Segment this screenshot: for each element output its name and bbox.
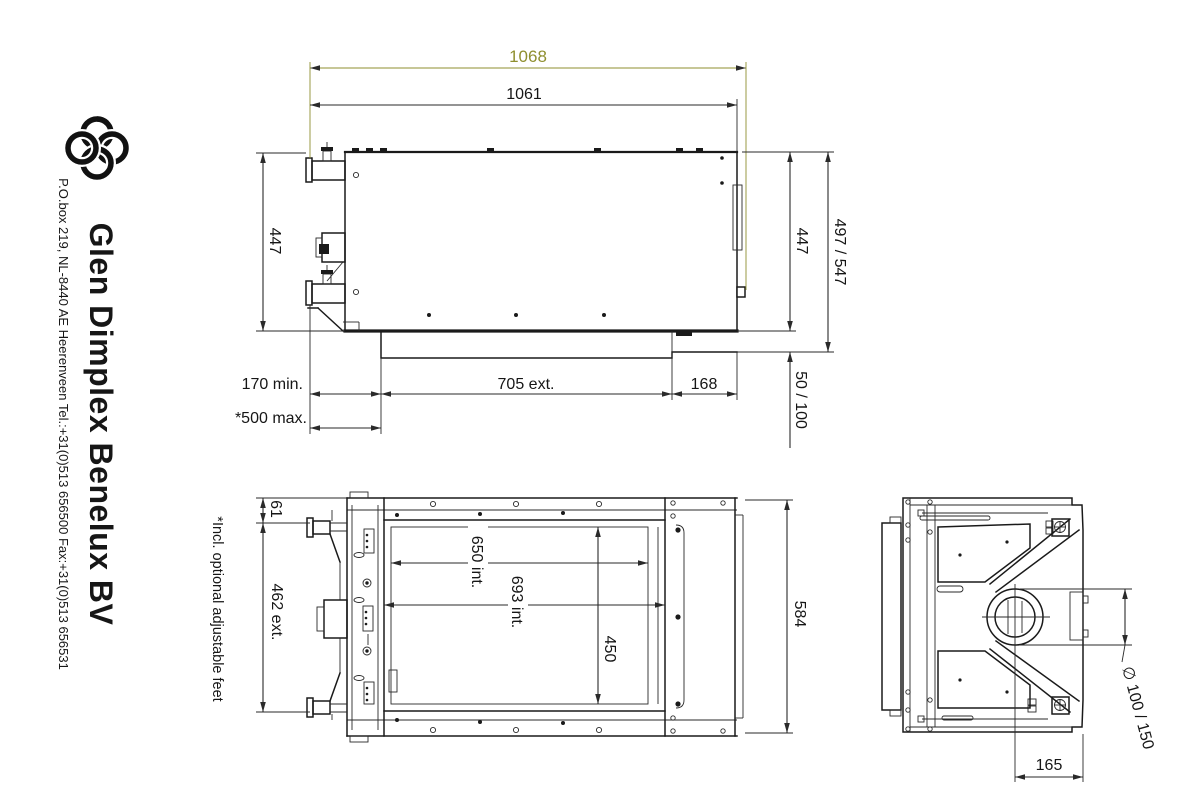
technical-drawing: Glen Dimplex Benelux BV P.O.box 219, NL-… [0, 0, 1200, 800]
dim-extension-width: 705 ext. [498, 376, 555, 393]
front-view: 61 462 ext. 650 int. 693 int. 450 584 [256, 492, 808, 742]
dim-width-inner-a: 650 int. [468, 536, 485, 588]
side-view: ∅ 100 / 150 165 [882, 498, 1157, 782]
front-view-dimensions: 61 462 ext. 650 int. 693 int. 450 584 [256, 498, 808, 733]
company-block: Glen Dimplex Benelux BV P.O.box 219, NL-… [56, 119, 126, 670]
dim-height-overall: 584 [791, 601, 808, 628]
dim-width-overall: 1068 [509, 47, 547, 66]
pipe-connector-top [306, 142, 345, 182]
drawing-sheet: Glen Dimplex Benelux BV P.O.box 219, NL-… [0, 0, 1200, 800]
dim-height-ext: 462 ext. [268, 584, 285, 641]
dim-flue-offset: 165 [1036, 757, 1063, 774]
dim-depth-total: 497 / 547 [831, 219, 848, 286]
dim-width-body: 1061 [506, 86, 542, 103]
frame-details [354, 529, 374, 704]
front-connectors [307, 510, 347, 720]
dim-offset-right: 168 [691, 376, 718, 393]
dim-top-margin: 61 [267, 500, 284, 518]
company-address: P.O.box 219, NL-8440 AE Heerenveen Tel.:… [56, 178, 71, 670]
pipe-connector-bottom [306, 265, 345, 305]
extension-strip [381, 331, 737, 358]
dim-clearance-min: 170 min. [242, 376, 303, 393]
company-name: Glen Dimplex Benelux BV [83, 223, 119, 626]
dim-flue-diameter: ∅ 100 / 150 [1118, 665, 1156, 752]
company-logo [68, 119, 126, 177]
top-view: 1068 1061 447 447 497 / 547 50 / 100 170… [235, 47, 848, 448]
dim-width-inner-b: 693 int. [508, 576, 525, 628]
dim-depth-right: 447 [793, 228, 810, 255]
dim-height-inner: 450 [601, 636, 618, 663]
feet-note: *Incl. optional adjustable feet [209, 516, 225, 701]
dim-flue-depth: 50 / 100 [792, 371, 809, 429]
flue-outlet [982, 584, 1050, 651]
dim-depth-left: 447 [266, 228, 283, 255]
dim-clearance-max: *500 max. [235, 410, 307, 427]
